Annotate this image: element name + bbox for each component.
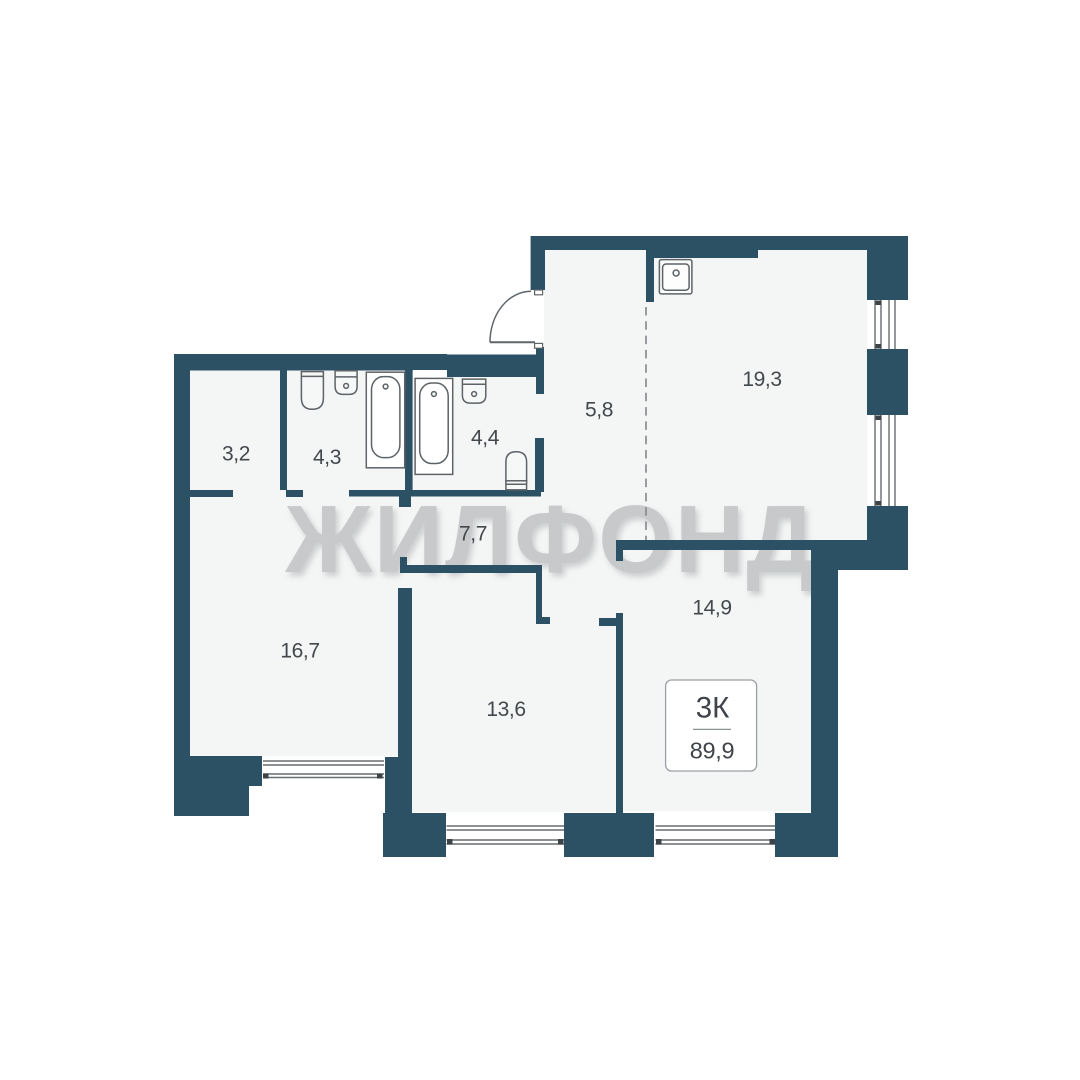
svg-text:89,9: 89,9 — [690, 737, 735, 763]
svg-text:19,3: 19,3 — [742, 368, 781, 391]
svg-text:4,3: 4,3 — [313, 446, 341, 469]
svg-text:3К: 3К — [696, 691, 730, 724]
svg-text:14,9: 14,9 — [692, 597, 731, 620]
svg-text:16,7: 16,7 — [280, 640, 319, 663]
svg-text:13,6: 13,6 — [486, 698, 525, 721]
svg-text:4,4: 4,4 — [471, 427, 500, 450]
svg-text:7,7: 7,7 — [459, 523, 487, 546]
svg-text:3,2: 3,2 — [222, 443, 250, 466]
svg-text:ЖИЛФОНД: ЖИЛФОНД — [284, 486, 816, 593]
svg-text:5,8: 5,8 — [585, 399, 613, 422]
